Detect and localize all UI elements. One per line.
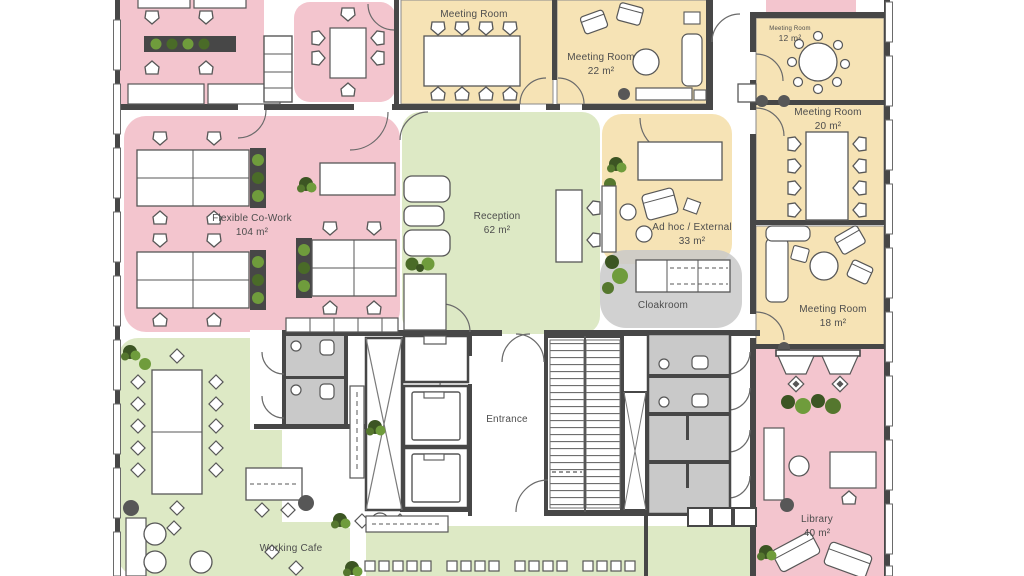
pink-sliver-zone bbox=[766, 0, 856, 13]
room-label-meeting-12: Meeting Room12 m² bbox=[769, 26, 810, 43]
room-label-meeting-a: Meeting Room bbox=[440, 8, 507, 22]
corridor-mask bbox=[250, 330, 286, 430]
open-office-furniture bbox=[128, 0, 292, 104]
room-label-library: Library40 m² bbox=[801, 513, 833, 540]
floor-plan-drawing bbox=[0, 0, 1024, 576]
floor-plan-canvas: Meeting Room Meeting Room22 m² Meeting R… bbox=[0, 0, 1024, 576]
room-label-reception: Reception62 m² bbox=[474, 210, 521, 237]
room-label-entrance: Entrance bbox=[486, 413, 528, 427]
elevators bbox=[404, 336, 468, 508]
room-label-cowork: Flexible Co-Work104 m² bbox=[212, 212, 292, 239]
stairwell bbox=[550, 336, 620, 512]
room-label-meeting-18: Meeting Room18 m² bbox=[799, 303, 866, 330]
toilet-block-right bbox=[648, 334, 756, 526]
room-label-working-cafe: Working Cafe bbox=[260, 542, 323, 556]
room-label-cloakroom: Cloakroom bbox=[638, 299, 688, 313]
room-label-meeting-22: Meeting Room22 m² bbox=[567, 51, 634, 78]
room-label-meeting-20: Meeting Room20 m² bbox=[794, 106, 861, 133]
room-label-adhoc: Ad hoc / External33 m² bbox=[652, 221, 732, 248]
